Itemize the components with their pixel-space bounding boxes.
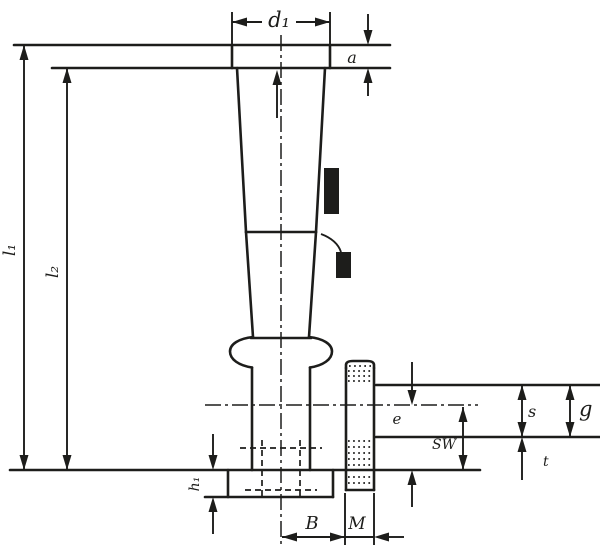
arrowhead <box>374 533 389 542</box>
arrowhead <box>20 45 29 60</box>
arrowhead <box>364 68 373 83</box>
body-lower-left-edge <box>246 232 253 337</box>
dim-b: B <box>282 513 345 542</box>
arrowhead <box>282 533 297 542</box>
dim-label-b: B <box>304 513 318 534</box>
arrowhead <box>20 455 29 470</box>
dim-a: a <box>347 14 372 96</box>
dim-label-s: s <box>528 402 536 421</box>
technical-drawing-canvas: d₁ a l₁ l₂ e SW <box>0 0 600 548</box>
dim-t: t <box>518 437 550 480</box>
reference-lines <box>10 12 600 545</box>
stud-thread-stipple-top <box>348 366 372 381</box>
dim-label-g: g <box>579 397 592 421</box>
arrowhead <box>209 497 218 512</box>
arrowhead <box>232 18 247 27</box>
detail-leader-line <box>321 234 341 252</box>
arrowhead <box>364 30 373 45</box>
stud-dome-top <box>346 361 374 368</box>
dim-h1: h₁ <box>187 434 218 534</box>
body-lower-right-edge <box>309 232 316 337</box>
dim-label-a: a <box>347 48 357 67</box>
handle-outline <box>228 45 351 497</box>
arrowhead <box>518 437 527 452</box>
arrowhead <box>63 68 72 83</box>
arrowhead <box>408 470 417 485</box>
arrowhead <box>459 407 468 422</box>
dim-s: s <box>518 385 537 437</box>
dim-label-l1: l₁ <box>0 244 20 256</box>
dim-label-sw: SW <box>432 437 458 453</box>
collar-right-curve <box>309 337 332 368</box>
body-upper-left-edge <box>237 68 246 232</box>
arrowhead <box>209 455 218 470</box>
arrowhead <box>459 455 468 470</box>
dim-label-m: M <box>347 514 366 534</box>
arrowhead <box>408 390 417 405</box>
arrowhead <box>566 422 575 437</box>
dim-g: g <box>566 385 593 437</box>
dim-sw: SW <box>432 407 467 470</box>
arrowhead <box>518 385 527 400</box>
dimension-drawing: d₁ a l₁ l₂ e SW <box>0 0 600 548</box>
dim-label-l2: l₂ <box>43 266 63 278</box>
center-pointer-arrow <box>273 70 282 118</box>
dim-l2: l₂ <box>43 68 72 470</box>
arrowhead <box>330 533 345 542</box>
body-upper-right-edge <box>316 68 325 232</box>
collar-left-curve <box>230 337 253 368</box>
dim-label-e: e <box>393 410 402 428</box>
dim-label-t: t <box>543 454 549 470</box>
detail-marker-box <box>336 252 351 278</box>
stud-thread-stipple-bottom <box>348 441 372 483</box>
arrowhead <box>315 18 330 27</box>
arrowhead <box>566 385 575 400</box>
arrowhead <box>518 422 527 437</box>
side-insert <box>324 168 339 214</box>
arrowhead <box>63 455 72 470</box>
dim-l1: l₁ <box>0 45 29 470</box>
dim-label-d1: d₁ <box>268 8 290 32</box>
dim-d1: d₁ <box>232 8 330 32</box>
dim-label-h1: h₁ <box>187 477 203 492</box>
